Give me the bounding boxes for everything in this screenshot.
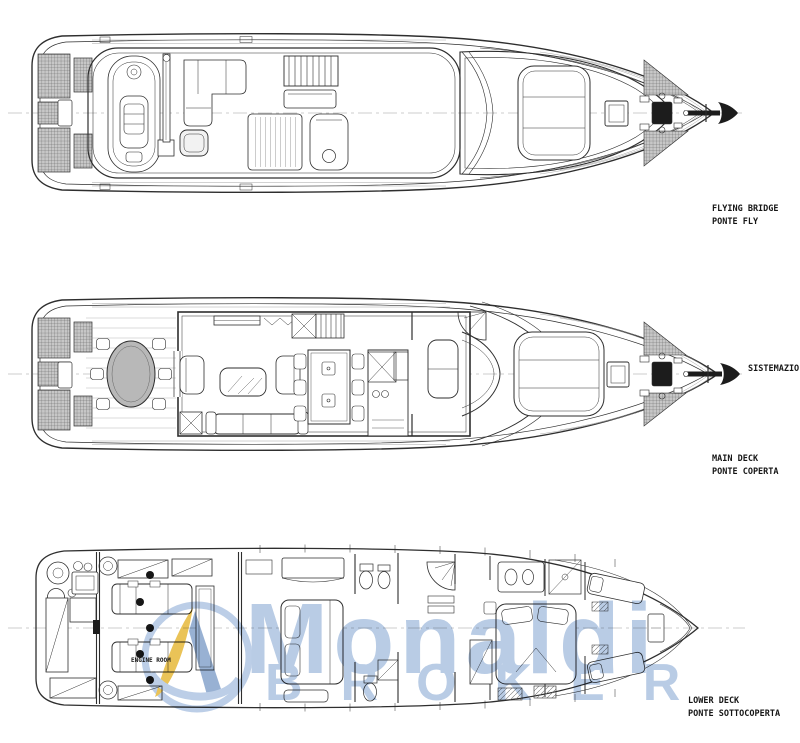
flybridge-stairs: [284, 56, 338, 86]
deck-hatch: [605, 101, 628, 126]
deck-plans-drawing: [0, 0, 800, 743]
stern-garage: [46, 562, 100, 699]
deck-hatch: [607, 362, 629, 387]
cockpit-table: [107, 341, 155, 407]
dining-table: [308, 350, 350, 424]
vip-cabin: [470, 602, 576, 700]
vip-bed: [496, 604, 576, 684]
stairs-up: [292, 314, 344, 338]
flying-bridge-label-it: PONTE FLY: [712, 217, 758, 227]
flybridge-bar: [284, 90, 336, 108]
coffee-table: [220, 368, 266, 396]
engine-room-label: ENGINE ROOM: [131, 657, 171, 664]
roof-sunpad: [518, 66, 590, 160]
main-deck-label: MAIN DECKPONTE COPERTA: [712, 453, 779, 479]
flybridge-sunpad: [248, 114, 302, 170]
engine-room: [99, 557, 214, 700]
lower-stairs: [427, 562, 455, 613]
helm-seat: [310, 114, 348, 170]
flybridge-sofa: [184, 60, 246, 126]
windlass: [640, 353, 682, 399]
flying-bridge-label-en: FLYING BRIDGE: [712, 204, 779, 214]
master-cabin: [246, 558, 398, 702]
main-deck-plan: [8, 298, 742, 451]
vip-bathroom: [498, 560, 581, 594]
yacht-deck-plans-page: Monaldi BROKER FLYING BRIDGEPONTE FLY SI…: [0, 0, 800, 743]
salon-sofa: [206, 412, 308, 434]
master-bathroom: [360, 564, 399, 701]
flying-bridge-label: FLYING BRIDGEPONTE FLY: [712, 203, 779, 229]
flying-bridge-plan: [8, 34, 742, 193]
galley: [368, 350, 408, 436]
storage-box: [180, 412, 202, 434]
main-deck-label-it: PONTE COPERTA: [712, 467, 779, 477]
sistemazione-label: SISTEMAZIO: [748, 363, 799, 376]
lower-deck-plan: [8, 545, 745, 712]
engine-port: [112, 581, 192, 614]
lower-deck-label-en: LOWER DECK: [688, 696, 739, 706]
tender: [108, 56, 160, 172]
lower-deck-label: LOWER DECKPONTE SOTTOCOPERTA: [688, 695, 780, 721]
anchor: [684, 363, 741, 385]
flybridge-table: [180, 130, 208, 156]
foredeck-sunpad: [514, 332, 604, 416]
lower-deck-label-it: PONTE SOTTOCOPERTA: [688, 709, 780, 719]
main-deck-label-en: MAIN DECK: [712, 454, 758, 464]
engine-starboard: [112, 639, 192, 672]
master-bed: [281, 600, 343, 684]
tv-sideboard: [214, 316, 260, 325]
